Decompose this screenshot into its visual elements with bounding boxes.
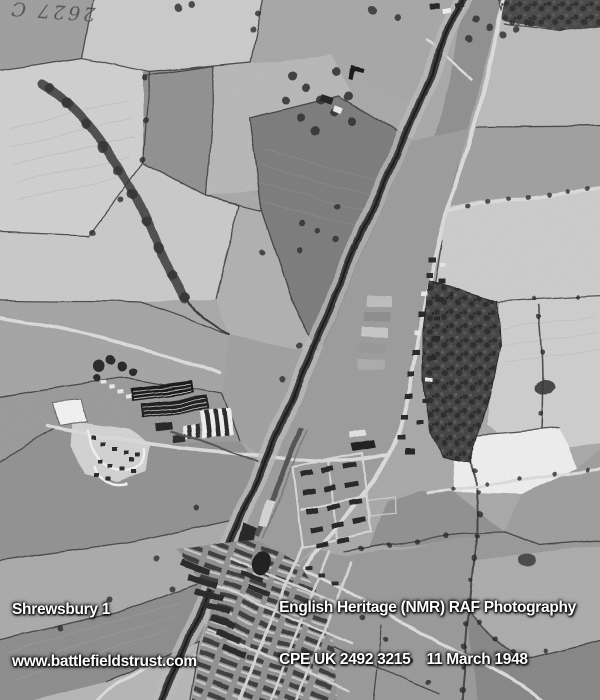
tree-clump xyxy=(535,381,555,395)
photo-credit: English Heritage (NMR) RAF Photography xyxy=(279,599,576,617)
white-pond xyxy=(54,399,86,425)
striped-roof-building xyxy=(199,409,234,439)
aerial-photo-figure: 2627 C Shrewsbury 1 www.battlefieldstrus… xyxy=(0,0,600,700)
photo-title: Shrewsbury 1 xyxy=(12,601,197,619)
photo-reference: CPE UK 2492 3215 11 March 1948 xyxy=(279,651,576,669)
photo-website-url: www.battlefieldstrust.com xyxy=(12,653,197,671)
caption-bottom-right: English Heritage (NMR) RAF Photography C… xyxy=(279,564,576,687)
caption-bottom-left: Shrewsbury 1 www.battlefieldstrust.com xyxy=(12,566,197,689)
